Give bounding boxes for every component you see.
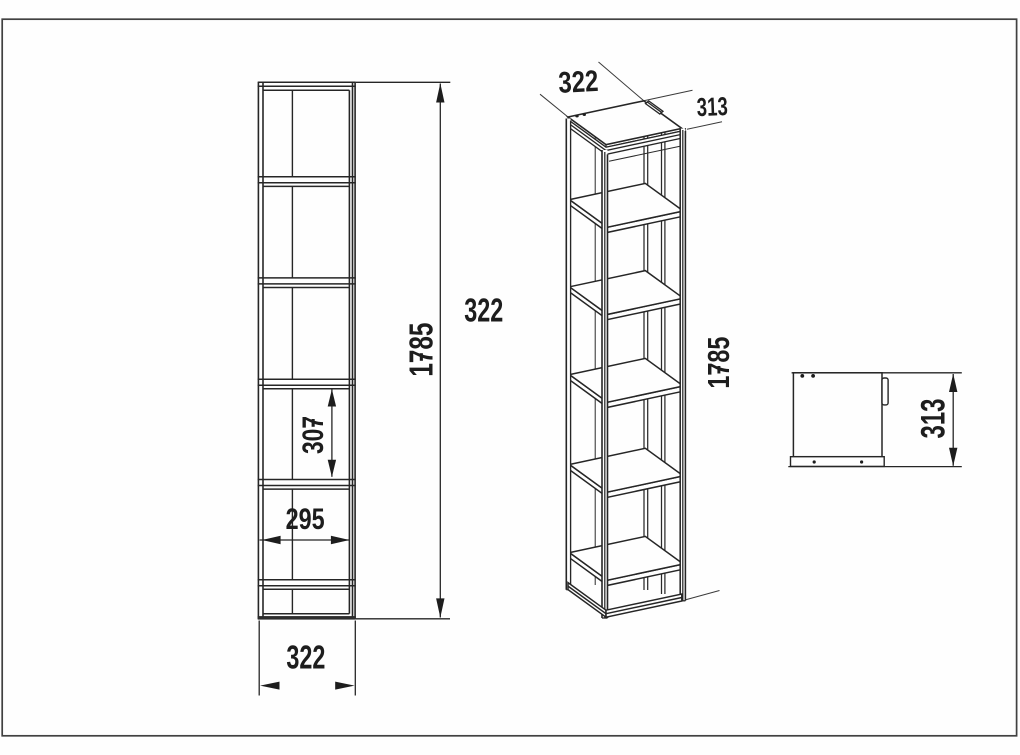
svg-text:322: 322 [286, 639, 325, 676]
svg-text:1785: 1785 [402, 323, 439, 377]
svg-text:295: 295 [286, 503, 325, 536]
svg-text:313: 313 [915, 399, 953, 439]
svg-text:322: 322 [558, 65, 600, 100]
svg-text:322: 322 [464, 292, 503, 329]
svg-text:1785: 1785 [701, 337, 736, 389]
svg-text:313: 313 [696, 91, 728, 122]
